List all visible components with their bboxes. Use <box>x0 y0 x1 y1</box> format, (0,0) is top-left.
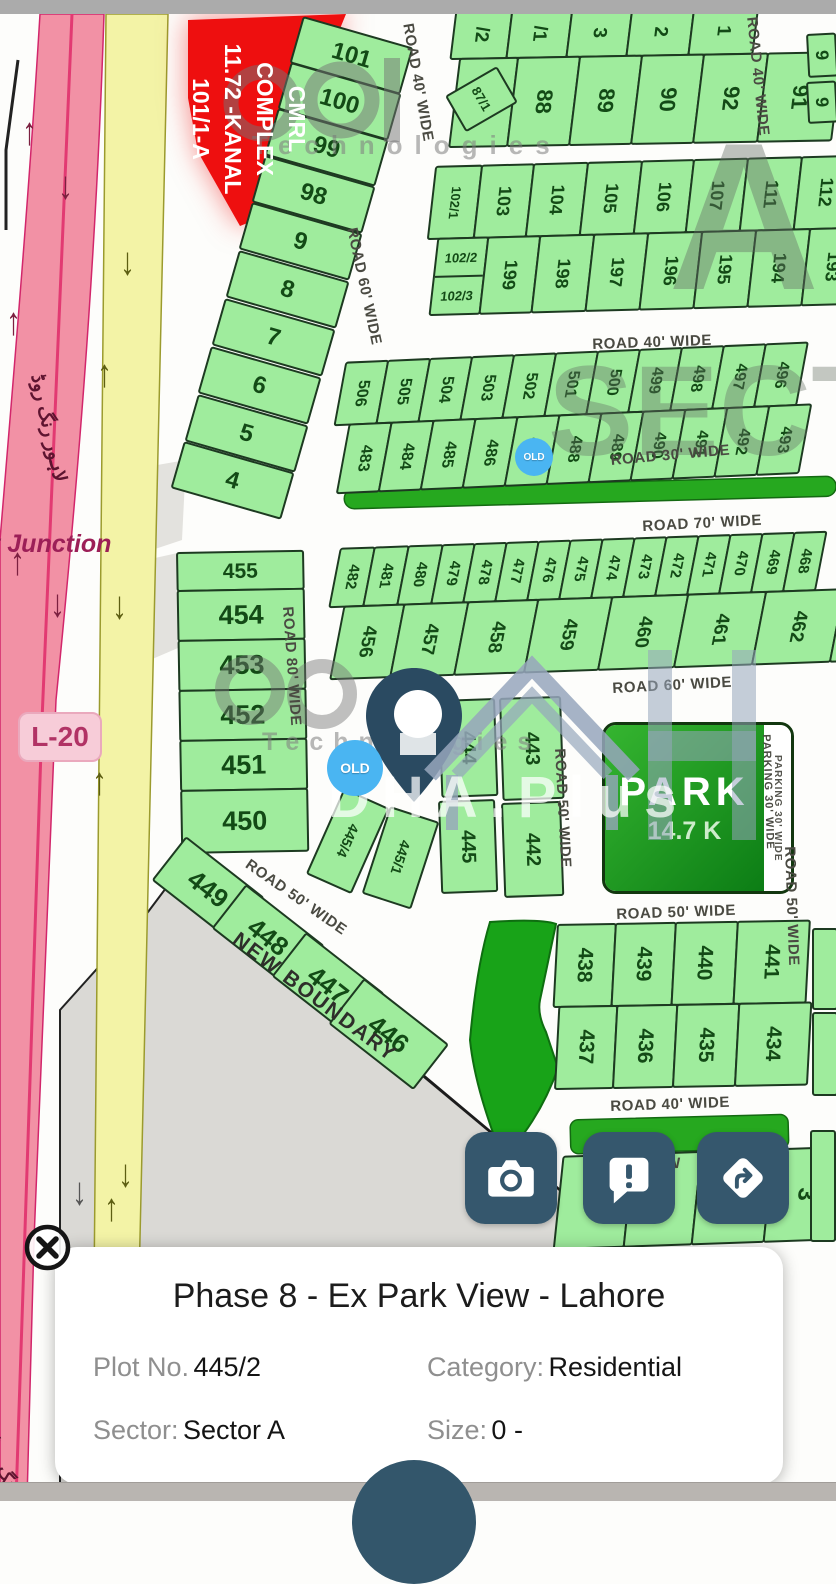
plot-label: 493 <box>773 426 794 454</box>
plot-label: 462 <box>785 611 810 644</box>
plot-label: 5 <box>237 420 256 447</box>
plot-block <box>812 1012 836 1096</box>
plot-label: 9 <box>813 50 831 61</box>
plot-436[interactable]: 436 <box>612 1004 678 1089</box>
plot-label: 453 <box>219 651 265 679</box>
plot-3[interactable]: 3 <box>565 7 633 58</box>
plot-label: /1 <box>529 25 550 41</box>
plot-label: 498 <box>687 365 708 393</box>
size-label: Size: <box>427 1415 487 1445</box>
plot-label: 112 <box>815 178 836 208</box>
plot-label: 7 <box>264 324 283 351</box>
plot-label: 472 <box>667 553 687 579</box>
plot-label: 2 <box>650 26 670 37</box>
plot-label: 470 <box>731 551 751 577</box>
plot-label: 442 <box>522 832 543 866</box>
camera-button[interactable] <box>465 1132 557 1224</box>
plot-block: /2/1321878889909291 <box>452 3 836 148</box>
plot-label: 460 <box>631 616 656 649</box>
traffic-direction-arrow: ↑ <box>22 114 37 153</box>
traffic-direction-arrow: ↑ <box>97 356 112 395</box>
road-edge-line <box>6 60 18 230</box>
plot-marker-pin[interactable] <box>366 668 462 802</box>
traffic-direction-arrow: ↑ <box>104 1190 119 1229</box>
plot-label: 87/1 <box>470 85 494 113</box>
plot-label: /2 <box>471 26 492 42</box>
category-value: Residential <box>548 1352 682 1382</box>
plot-label: 102/2 <box>444 250 478 264</box>
plot-number-value: 445/2 <box>194 1352 262 1382</box>
plot-label: 485 <box>438 440 459 468</box>
plot-label: 198 <box>552 258 573 289</box>
plot-label: 89 <box>593 88 618 113</box>
plot-label: 441 <box>760 944 783 979</box>
plot-label: 435 <box>695 1028 718 1063</box>
plot-number-row: Plot No. 445/2 <box>93 1352 427 1383</box>
plot-label: 457 <box>417 623 442 656</box>
traffic-direction-arrow: ↓ <box>58 168 73 207</box>
plot-label: 500 <box>603 368 624 396</box>
plot-label: 451 <box>221 751 267 779</box>
plot-label: 434 <box>762 1026 785 1061</box>
plot-label: 439 <box>632 947 655 982</box>
complex-line: COMPLEX <box>249 62 281 176</box>
plot-1[interactable]: /1 <box>505 8 573 59</box>
plot-label: 454 <box>218 601 264 629</box>
plot-blank[interactable] <box>812 928 836 1010</box>
plot-label: 450 <box>222 807 268 835</box>
traffic-direction-arrow: ↑ <box>6 304 21 343</box>
category-label: Category: <box>427 1352 544 1382</box>
plot-label: 479 <box>443 561 463 587</box>
plot-label: 496 <box>770 361 791 389</box>
complex-line: 11.72 -KANAL <box>217 44 249 195</box>
plot-label: 503 <box>477 374 498 402</box>
plot-label: 196 <box>660 255 681 286</box>
plot-455[interactable]: 455 <box>176 550 305 592</box>
plot-label: 502 <box>519 372 540 400</box>
sector-value: Sector A <box>183 1415 285 1445</box>
plot-label: 8 <box>278 276 297 303</box>
plot-label: 474 <box>603 555 623 581</box>
plot-info-card: Phase 8 - Ex Park View - Lahore Plot No.… <box>55 1247 783 1484</box>
plot-label: 482 <box>342 564 362 590</box>
plot-label: 197 <box>606 257 627 288</box>
close-icon <box>24 1224 71 1271</box>
plot-label: 480 <box>410 562 430 588</box>
camera-icon <box>484 1151 538 1205</box>
plot-label: 102/1 <box>447 186 464 219</box>
traffic-direction-arrow: ↓ <box>50 586 65 625</box>
cmrl-complex-label: CMRL COMPLEX 11.72 -KANAL 101/1-A <box>138 8 360 230</box>
junction-label: t Junction <box>0 530 111 559</box>
plot-label: 484 <box>396 442 417 470</box>
traffic-direction-arrow: ↓ <box>118 1156 133 1195</box>
plot-label: 455 <box>223 560 258 582</box>
plot-462[interactable]: 462 <box>751 588 836 665</box>
traffic-direction-arrow: ↓ <box>120 244 135 283</box>
plot-label: 501 <box>561 370 582 398</box>
plot-block: 4824814804794784774764754744734724714704… <box>333 529 836 680</box>
plot-block: 9 <box>806 33 836 78</box>
plot-label: 107 <box>706 180 727 211</box>
plot-block: 5065055045035025015004994984974964834844… <box>338 342 805 494</box>
sector-label: Sector: <box>93 1415 179 1445</box>
plot-label: 106 <box>653 182 674 213</box>
plot-label: 488 <box>564 435 585 463</box>
status-bar-strip <box>0 0 836 14</box>
plot-9[interactable]: 9 <box>806 80 836 124</box>
traffic-direction-arrow: ↓ <box>112 588 127 627</box>
directions-icon <box>715 1150 771 1206</box>
plot-block: 9 <box>806 81 836 124</box>
plot-label: 105 <box>600 183 621 214</box>
plot-label: 475 <box>571 556 591 582</box>
plot-label: 481 <box>376 563 396 589</box>
plot-label: 438 <box>573 948 596 983</box>
plot-label: 90 <box>655 87 680 112</box>
plot-label: 478 <box>475 560 495 586</box>
plot-block <box>812 928 836 1010</box>
plot-blank[interactable] <box>810 1130 836 1242</box>
size-row: Size: 0 - <box>427 1415 745 1446</box>
plot-label: 456 <box>355 626 380 659</box>
close-card-button[interactable] <box>24 1224 71 1271</box>
plot-block: 442 <box>501 801 562 898</box>
plot-label: 505 <box>393 377 414 405</box>
plot-label: 445 <box>458 829 479 863</box>
plot-block: 102/1103104105106107111112102/2102/31991… <box>430 155 836 316</box>
plot-number-label: Plot No. <box>93 1352 189 1382</box>
plot-label: 452 <box>220 701 266 729</box>
plot-blank[interactable] <box>812 1012 836 1096</box>
plot-label: 506 <box>351 379 372 407</box>
plot-label: 459 <box>556 619 581 652</box>
plot-label: 9 <box>291 228 310 255</box>
plot-label: 497 <box>729 363 750 391</box>
plot-label: 469 <box>763 550 783 576</box>
plot-label: 104 <box>546 184 567 215</box>
plot-label: 193 <box>822 251 836 282</box>
plot-label: 437 <box>575 1030 598 1065</box>
plot-2[interactable]: /2 <box>449 9 513 60</box>
park-green: PARK 14.7 K <box>605 725 764 891</box>
park-title: PARK <box>619 770 749 815</box>
sector-row: Sector: Sector A <box>93 1415 427 1446</box>
plot-445[interactable]: 445 <box>438 799 498 894</box>
plot-438[interactable]: 438 <box>553 923 617 1008</box>
plot-450[interactable]: 450 <box>180 788 309 854</box>
plot-label: 102/3 <box>440 288 474 302</box>
plot-label: 476 <box>539 558 559 584</box>
plot-label: 199 <box>499 260 520 291</box>
plot-label: 483 <box>354 444 375 472</box>
plot-label: 3 <box>589 27 609 38</box>
report-chat-icon <box>602 1151 656 1205</box>
report-button[interactable] <box>583 1132 675 1224</box>
plot-label: 92 <box>718 86 743 111</box>
plot-block <box>810 1130 834 1242</box>
plot-440[interactable]: 440 <box>671 921 739 1006</box>
plot-label: 458 <box>484 621 509 654</box>
plot-label: 436 <box>634 1029 657 1064</box>
plot-label: 440 <box>693 946 716 981</box>
complex-line: CMRL <box>281 86 313 152</box>
plot-label: 504 <box>435 376 456 404</box>
complex-line: 101/1-A <box>185 78 217 160</box>
directions-button[interactable] <box>697 1132 789 1224</box>
plot-label: 486 <box>480 439 501 467</box>
plot-label: 473 <box>635 554 655 580</box>
road-badge-l20: L-20 <box>18 712 102 762</box>
plot-label: 88 <box>531 89 556 114</box>
plot-label: 445/1 <box>388 839 412 877</box>
plot-label: 445/4 <box>334 822 361 860</box>
traffic-direction-arrow: ↓ <box>72 1174 87 1213</box>
plot-block: 445 <box>438 799 496 894</box>
plot-label: 9 <box>813 97 831 108</box>
plot-label: 449 <box>183 865 233 912</box>
plot-label: 6 <box>250 372 269 399</box>
plot-435[interactable]: 435 <box>672 1003 740 1088</box>
plot-439[interactable]: 439 <box>611 922 677 1007</box>
plot-451[interactable]: 451 <box>179 738 308 792</box>
plot-434[interactable]: 434 <box>734 1002 812 1087</box>
plot-label: 468 <box>795 549 815 575</box>
traffic-direction-arrow: ↑ <box>92 764 107 803</box>
size-value: 0 - <box>491 1415 523 1445</box>
fab-button[interactable] <box>352 1460 476 1584</box>
park-size: 14.7 K <box>648 817 722 846</box>
plot-label: 111 <box>760 180 781 209</box>
plot-label: 492 <box>731 428 752 456</box>
plot-label: 4 <box>223 467 242 494</box>
plot-label: 499 <box>645 366 666 394</box>
plot-label: 443 <box>521 731 542 765</box>
plot-112[interactable]: 112 <box>793 155 836 231</box>
plot-label: 471 <box>699 552 719 578</box>
card-title: Phase 8 - Ex Park View - Lahore <box>55 1277 783 1316</box>
plot-label: 1 <box>713 25 733 36</box>
old-plot-badge[interactable]: OLD <box>327 740 383 796</box>
plot-9[interactable]: 9 <box>806 32 836 78</box>
plot-block: 438439440441437436435434 <box>554 920 809 1090</box>
plot-437[interactable]: 437 <box>554 1005 618 1090</box>
category-row: Category: Residential <box>427 1352 745 1383</box>
plot-label: 195 <box>714 254 735 285</box>
old-plot-badge[interactable]: OLD <box>515 438 553 476</box>
plot-label: 477 <box>507 559 527 585</box>
plot-label: 194 <box>768 253 789 284</box>
plot-label: 103 <box>493 186 514 217</box>
plot-label: 461 <box>707 613 732 646</box>
